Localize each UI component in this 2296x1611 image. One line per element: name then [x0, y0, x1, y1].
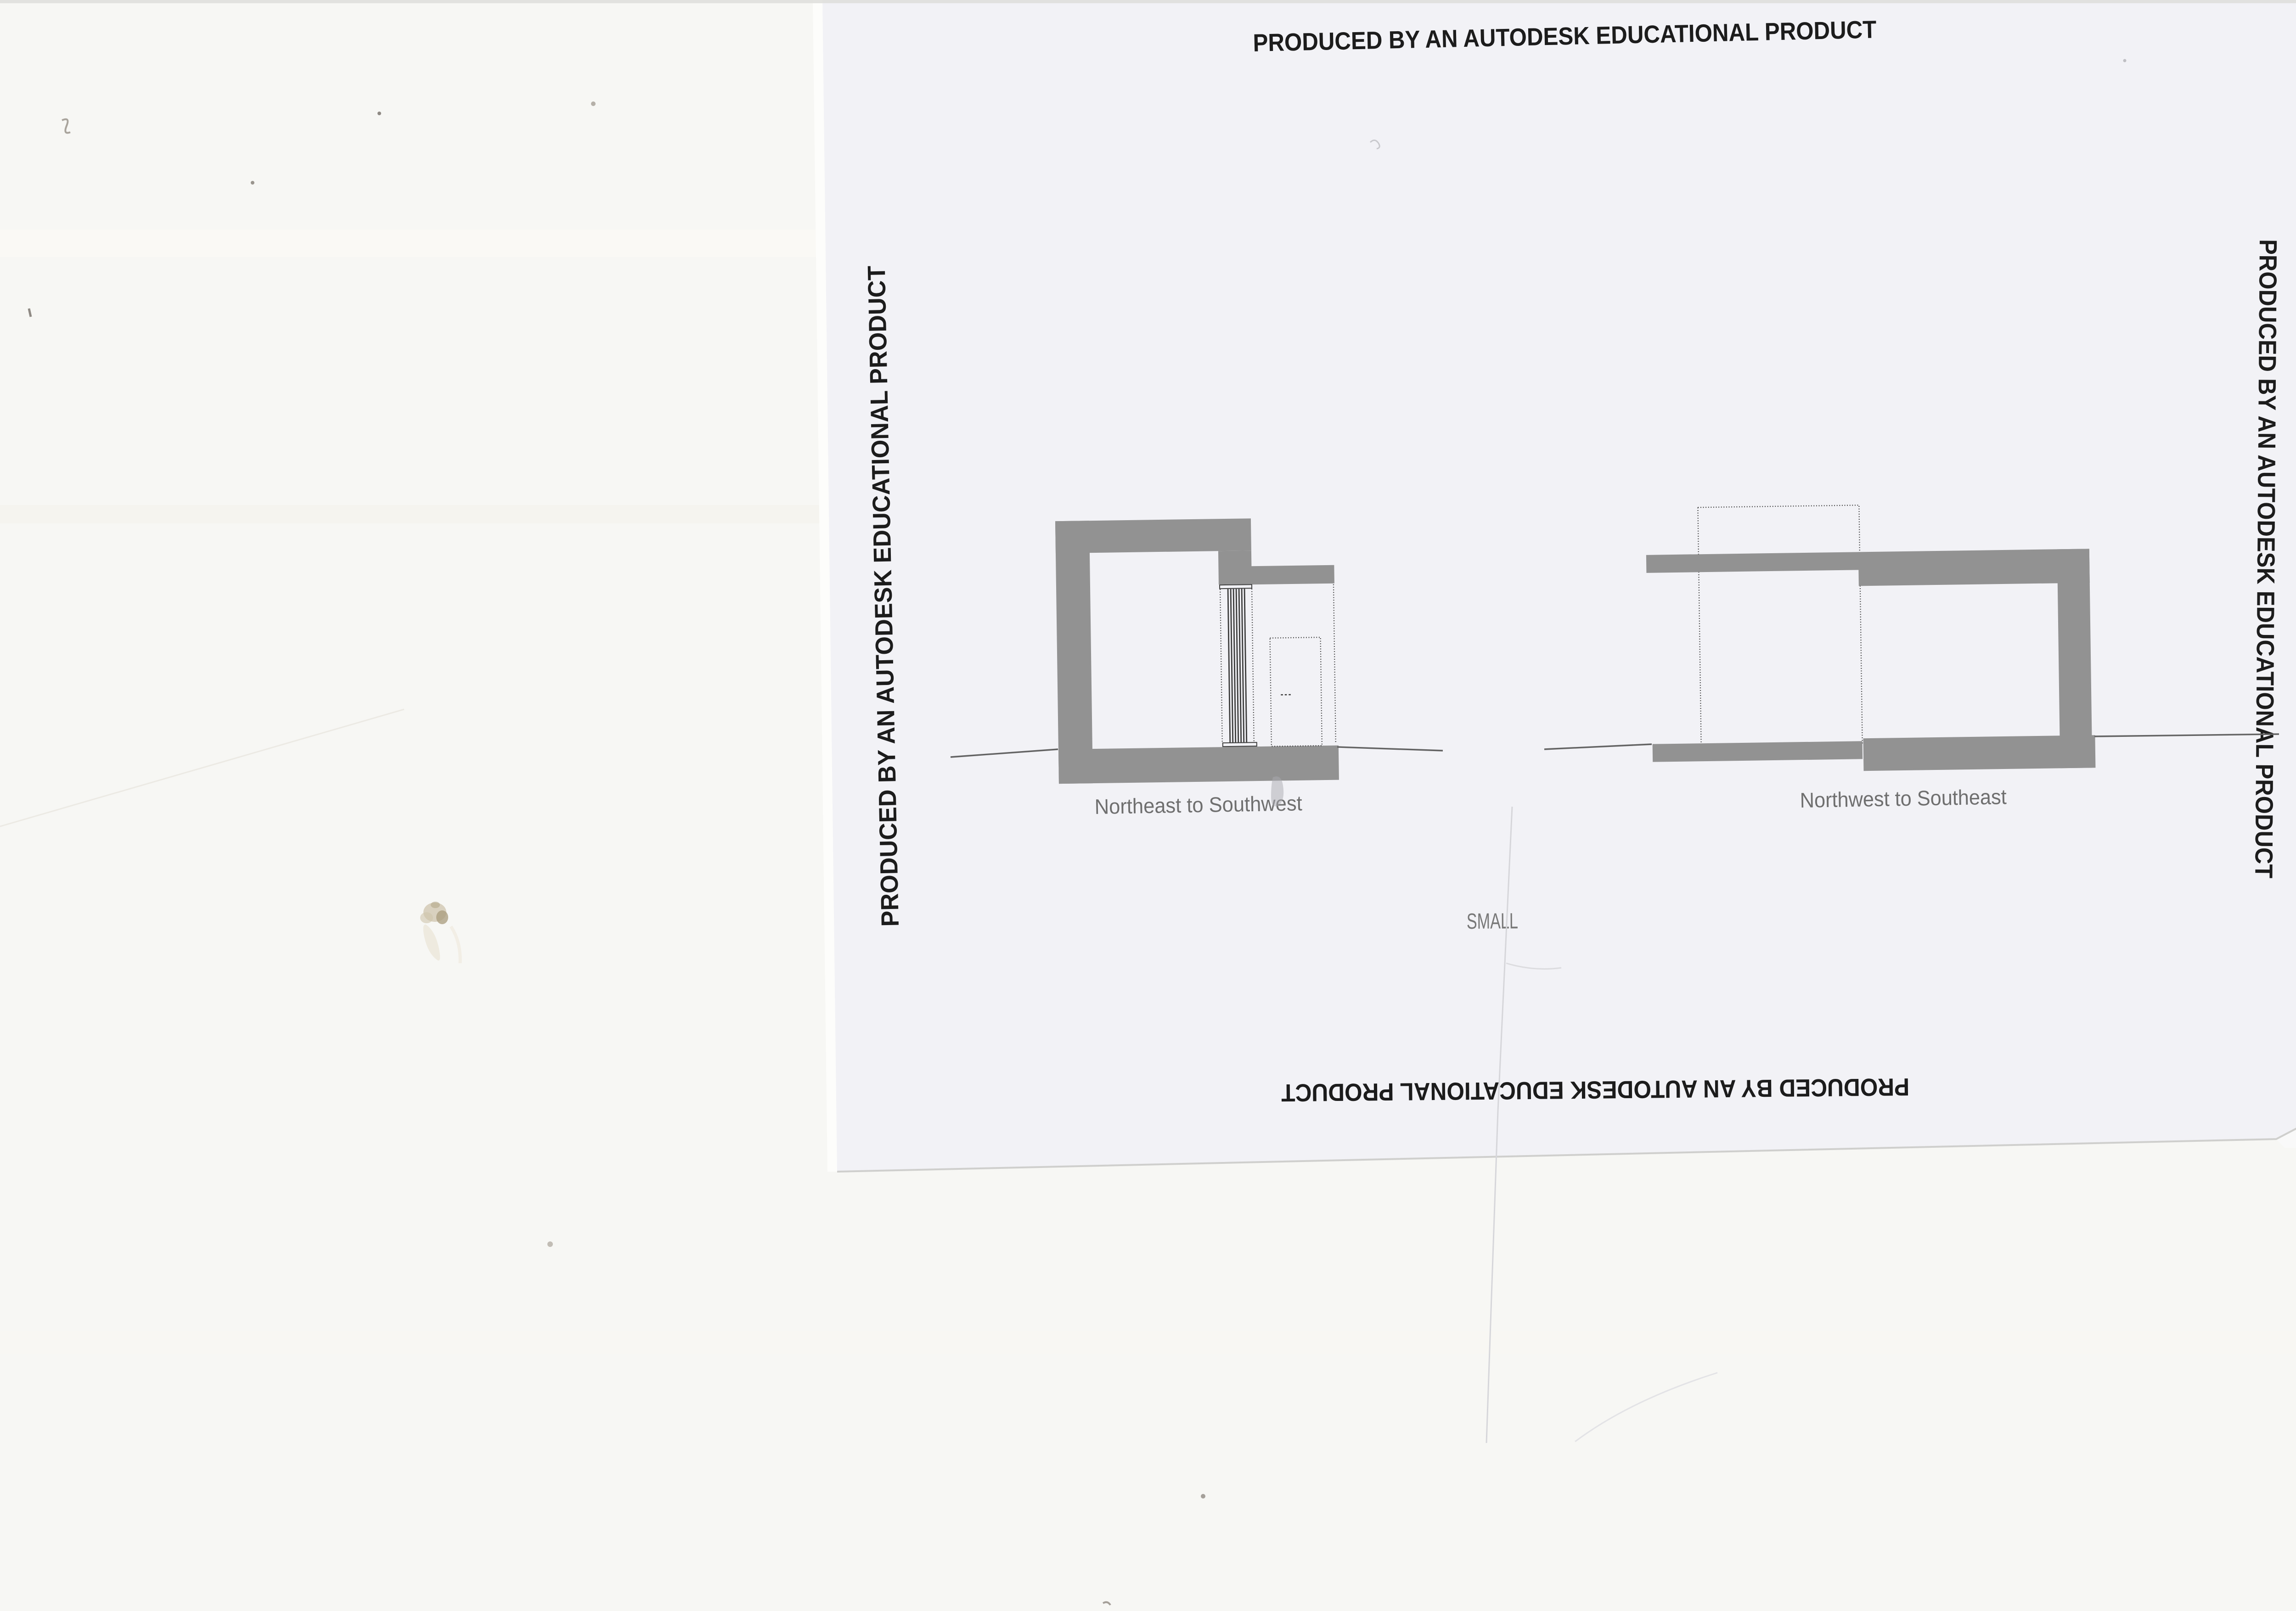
svg-text:SMALL: SMALL — [1467, 909, 1518, 934]
svg-text:Northwest to Southeast: Northwest to Southeast — [1800, 785, 2007, 812]
svg-text:PRODUCED BY AN AUTODESK EDUCAT: PRODUCED BY AN AUTODESK EDUCATIONAL PROD… — [2250, 239, 2282, 878]
